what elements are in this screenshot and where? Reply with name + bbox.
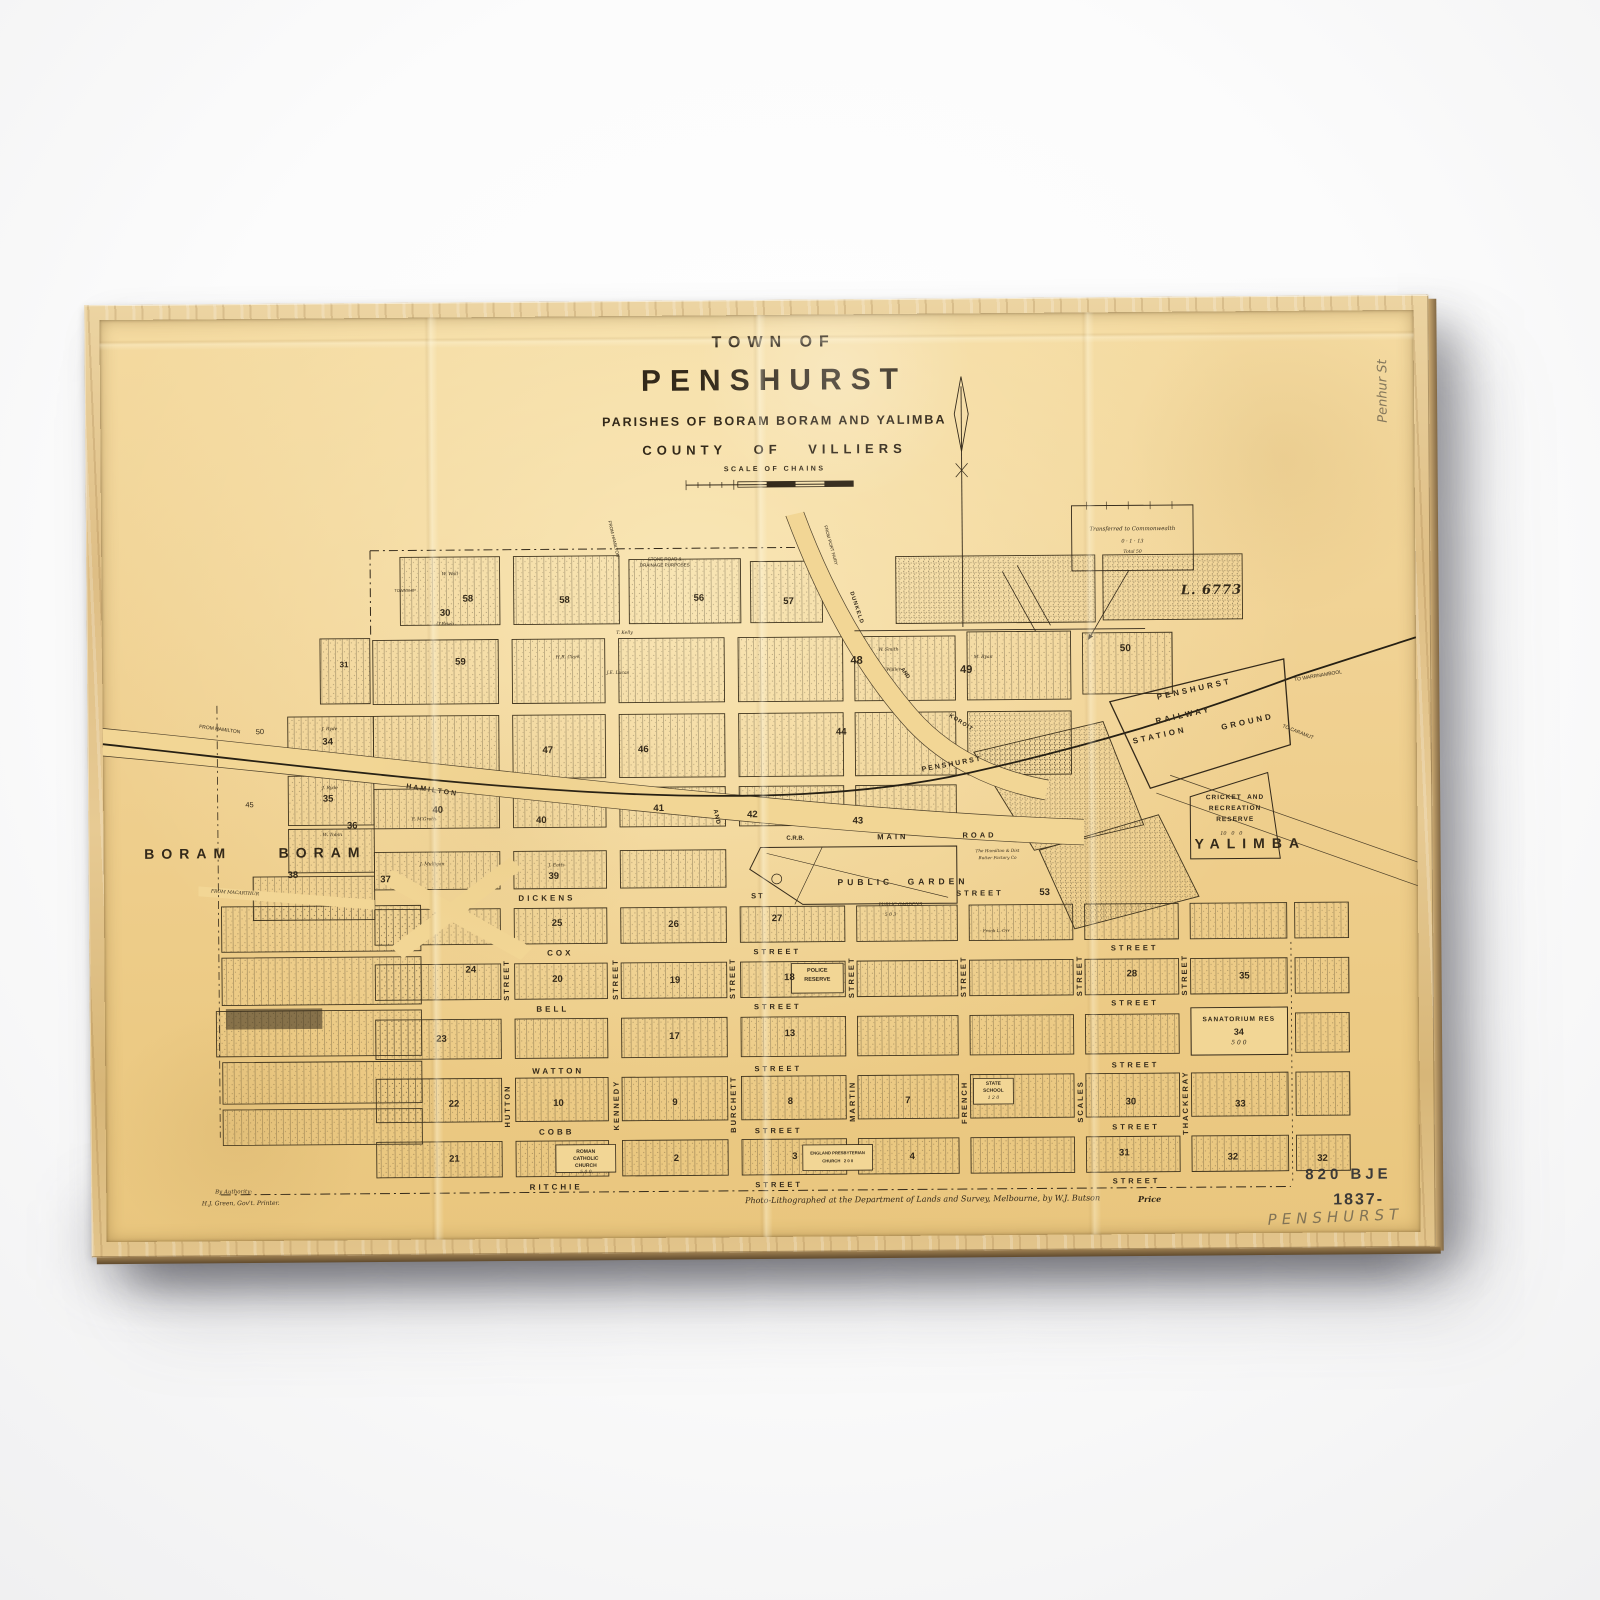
map-label-j-ryde: J. Ryde (322, 728, 338, 733)
map-label-56: 56 (694, 594, 705, 604)
map-label-reserve: RESERVE (804, 977, 830, 983)
map-label-price: Price (1138, 1194, 1161, 1202)
map-label-street: STREET (755, 1126, 803, 1134)
map-label-j-mulligan: J. Mulligan (420, 863, 445, 868)
map-label-7: 7 (905, 1096, 910, 1106)
map-label-total-50: Total 50 (1123, 550, 1141, 555)
map-label-20: 20 (552, 974, 563, 984)
map-label-820-bje: 820 BJE (1305, 1166, 1391, 1182)
map-label-dickens: DICKENS (518, 894, 575, 902)
map-label-31: 31 (1119, 1148, 1130, 1158)
map-label-street: STREET (956, 889, 1004, 897)
map-label-59: 59 (455, 658, 466, 668)
map-label-l-6773: L. 6773 (1181, 584, 1242, 597)
map-label-watton: WATTON (532, 1068, 584, 1076)
map-label-22: 22 (449, 1100, 460, 1110)
map-label-37: 37 (380, 875, 391, 885)
map-label-and: AND (712, 809, 721, 826)
map-label-5-0-0: 5 0 0 (580, 1171, 591, 1176)
map-label-40: 40 (432, 806, 443, 816)
map-label-thackeray: THACKERAY (1182, 1070, 1190, 1134)
map-label-j-eatts: J. Eatts (549, 865, 565, 870)
map-label-from-hamilton: FROM HAMILTON (199, 725, 241, 735)
map-label-3: 3 (792, 1152, 797, 1162)
map-label-1-2-0: 1 2 0 (988, 1097, 999, 1102)
map-label-30: 30 (1126, 1097, 1137, 1107)
map-label-ritchie: RITCHIE (530, 1183, 583, 1191)
map-label-butter-factory-co: Butter Factory Co (979, 856, 1017, 861)
map-labels: DICKENSSTSTREETCOXSTREETSTREETBELLSTREET… (99, 310, 1420, 1242)
map-label-photo-lithographed-at-th: Photo-Lithographed at the Department of … (745, 1194, 1100, 1205)
map-label-j-e-lucas: J.E. Lucas (607, 672, 629, 677)
map-label-penshurst: PENSHURST (921, 755, 982, 773)
map-label-49: 49 (960, 665, 972, 676)
map-label-35: 35 (1239, 971, 1250, 981)
map-label-39: 39 (548, 872, 559, 882)
map-label-t-kelly: T. Kelly (616, 631, 633, 636)
map-label-street: STREET (1181, 954, 1189, 996)
map-label-34: 34 (1234, 1028, 1244, 1037)
map-label-21: 21 (449, 1155, 460, 1165)
map-label-st: ST (751, 892, 765, 900)
map-label-38: 38 (288, 871, 299, 881)
map-label-drainage-purposes: DRAINAGE PURPOSES (640, 564, 690, 569)
map-label-58: 58 (463, 595, 474, 605)
map-label-reserve: RESERVE (1216, 817, 1254, 824)
map-label-40: 40 (536, 816, 547, 826)
map-label-martin: MARTIN (848, 1081, 856, 1122)
map-label-o-brien: O'Brien (437, 623, 454, 628)
map-label-w-wall: W. Wall (442, 573, 459, 578)
map-paper: TOWN OF PENSHURST PARISHES OF BORAM BORA… (99, 310, 1420, 1242)
map-label-from-hamilton: FROM HAMILTON (606, 520, 619, 557)
map-label-33: 33 (1235, 1099, 1246, 1109)
map-label-penshurst: PENSHURST (1156, 677, 1232, 701)
map-label-street: STREET (754, 1003, 802, 1011)
map-label-9: 9 (672, 1098, 677, 1108)
map-label-32: 32 (1317, 1154, 1328, 1164)
map-label-ground: GROUND (1220, 713, 1274, 732)
map-label-23: 23 (436, 1035, 447, 1045)
map-label-10: 10 (553, 1099, 564, 1109)
map-label-17: 17 (669, 1032, 680, 1042)
map-label-h-r-clark: H.R. Clark (556, 656, 580, 661)
map-label-sanatorium-res: SANATORIUM RES (1202, 1017, 1275, 1024)
map-label-catholic: CATHOLIC (573, 1157, 599, 1162)
map-label-yalimba: YALIMBA (1194, 836, 1306, 851)
map-label-from-macarthur: FROM MACARTHUR (211, 890, 259, 897)
map-label-4: 4 (910, 1152, 915, 1162)
map-label-recreation: RECREATION (1209, 806, 1262, 813)
map-label-by-authority: By Authority: (215, 1190, 252, 1196)
map-label-30: 30 (440, 609, 451, 619)
map-label-45: 45 (245, 801, 253, 809)
map-label-french: FRENCH (961, 1081, 969, 1124)
map-label-roman: ROMAN (576, 1150, 595, 1155)
map-label-kennedy: KENNEDY (612, 1080, 620, 1131)
map-label-cobb: COBB (539, 1129, 575, 1137)
map-label-burchett: BURCHETT (730, 1075, 738, 1132)
map-label-street: STREET (1112, 1123, 1160, 1131)
map-label-dunkeld: DUNKELD (847, 591, 863, 625)
map-label-railway: RAILWAY (1155, 706, 1212, 726)
map-label-w-tobin: W. Tobin (323, 834, 342, 839)
map-label-c-r-b: C.R.B. (786, 835, 804, 841)
map-label-church-2-0-0: CHURCH 2 0 0 (822, 1159, 853, 1163)
map-label-church: CHURCH (575, 1164, 597, 1169)
map-label-25: 25 (552, 919, 563, 929)
map-label-43: 43 (853, 816, 864, 826)
map-label-50: 50 (256, 728, 264, 736)
map-label-hutton: HUTTON (504, 1084, 512, 1127)
map-label-street: STREET (753, 948, 801, 956)
map-label-main: MAIN (877, 833, 908, 841)
map-label-from-port-fairy: FROM PORT FAIRY (822, 525, 837, 566)
map-label-18: 18 (784, 973, 795, 983)
map-label-50: 50 (1120, 644, 1131, 654)
map-label-8: 8 (788, 1097, 793, 1107)
map-label-48: 48 (850, 656, 862, 667)
map-label-street: STREET (1111, 999, 1159, 1007)
map-label-street: STREET (729, 957, 737, 999)
map-label-35: 35 (323, 795, 334, 805)
map-label-m-ryan: M. Ryan (974, 656, 993, 661)
map-label-to-warrnambool: TO WARRNAMBOOL (1294, 670, 1343, 683)
map-label-34: 34 (322, 738, 333, 748)
map-label-koroit: KOROIT (948, 714, 974, 733)
map-label-f-m-groth: F. M'Groth (412, 818, 436, 823)
map-label-station: STATION (1132, 726, 1187, 746)
map-label-41: 41 (653, 804, 664, 814)
map-label-5-0-3: 5 0 3 (885, 913, 896, 918)
map-label-57: 57 (783, 597, 794, 607)
map-label-state: STATE (986, 1083, 1001, 1088)
map-label-penhur-st: Penhur St (1376, 359, 1389, 422)
map-label-19: 19 (670, 976, 681, 986)
map-label-58: 58 (559, 596, 570, 606)
map-label-penshurst: PENSHURST (1268, 1207, 1404, 1228)
map-label-cricket-and: CRICKET AND (1206, 795, 1264, 802)
map-label-boram: BORAM (144, 847, 232, 862)
map-label-police: POLICE (807, 968, 828, 974)
map-label-42: 42 (747, 810, 758, 820)
map-label-road: ROAD (962, 831, 996, 839)
map-label-2: 2 (674, 1154, 679, 1164)
map-label-31: 31 (340, 661, 349, 669)
map-label-46: 46 (638, 745, 649, 755)
map-label-street: STREET (1112, 1061, 1160, 1069)
map-label-street: STREET (1111, 944, 1159, 952)
map-label-scales: SCALES (1076, 1080, 1084, 1122)
map-label-cox: COX (547, 949, 573, 957)
map-label-to-caramut: TO CARAMUT (1281, 724, 1314, 741)
map-label-township: TOWNSHIP (394, 589, 416, 593)
map-label-street: STREET (960, 955, 968, 997)
map-label-0-1-13: 0 · 1 · 13 (1121, 539, 1143, 544)
map-label-13: 13 (785, 1029, 796, 1039)
map-label-public-gardens: PUBLIC GARDENS (878, 903, 922, 908)
map-label-53: 53 (1039, 888, 1050, 898)
map-label-street: STREET (611, 958, 619, 1000)
map-label-28: 28 (1127, 969, 1138, 979)
map-label-waller: Waller (886, 669, 901, 674)
map-label-27: 27 (772, 915, 783, 925)
map-label-26: 26 (668, 920, 679, 930)
wall-background: TOWN OF PENSHURST PARISHES OF BORAM BORA… (0, 0, 1600, 1600)
map-label-street: STREET (1113, 1177, 1161, 1185)
map-label-street: STREET (847, 956, 855, 998)
map-label-bell: BELL (536, 1006, 569, 1014)
map-label-street: STREET (754, 1065, 802, 1073)
map-label-36: 36 (347, 821, 358, 831)
map-label-24: 24 (466, 965, 477, 975)
map-label-boram: BORAM (279, 846, 367, 861)
map-label-stone-road: STONE ROAD & (648, 557, 682, 562)
map-label-w-smith: W. Smith (878, 649, 898, 654)
map-label-street: STREET (503, 959, 511, 1001)
map-label-frank-l-orr: Frank L. Orr (983, 929, 1010, 933)
map-label-hamilton: HAMILTON (405, 784, 458, 799)
map-label-garden: GARDEN (908, 877, 969, 886)
map-label-transferred-to-commonwea: Transferred to Commonwealth (1089, 527, 1175, 533)
map-label-5-0-0: 5 0 0 (1231, 1040, 1246, 1046)
wooden-frame: TOWN OF PENSHURST PARISHES OF BORAM BORA… (84, 295, 1435, 1258)
map-label-j-ryde: J. Ryde (322, 787, 338, 792)
framed-map-artwork: TOWN OF PENSHURST PARISHES OF BORAM BORA… (84, 295, 1435, 1258)
map-label-44: 44 (836, 728, 847, 738)
map-label-street: STREET (755, 1181, 803, 1189)
map-label-h-j-green-gov-t-printer: H.J. Green, Gov't. Printer. (202, 1200, 280, 1207)
map-label-the-hamilton-dist: The Hamilton & Dist (976, 849, 1020, 854)
map-label-public: PUBLIC (837, 878, 893, 887)
map-label-school: SCHOOL (983, 1090, 1004, 1095)
map-label-england-presbyterian: ENGLAND PRESBYTERIAN (810, 1151, 865, 1156)
map-label-32: 32 (1228, 1153, 1239, 1163)
map-label-street: STREET (1075, 954, 1083, 996)
map-label-47: 47 (542, 746, 553, 756)
